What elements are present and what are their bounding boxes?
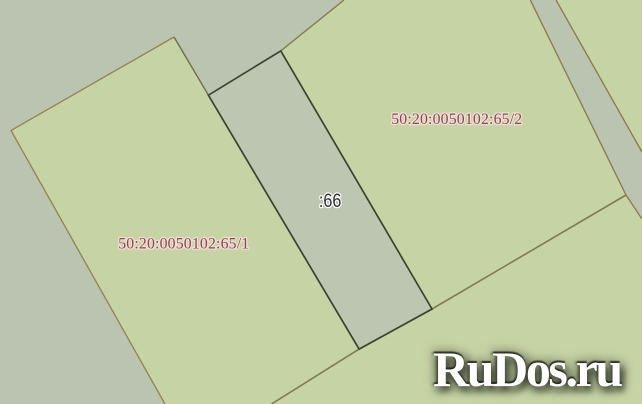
svg-text::66: :66	[319, 191, 342, 212]
svg-text:50:20:0050102:65/2: 50:20:0050102:65/2	[391, 111, 522, 128]
svg-text:50:20:0050102:65/1: 50:20:0050102:65/1	[118, 236, 249, 253]
